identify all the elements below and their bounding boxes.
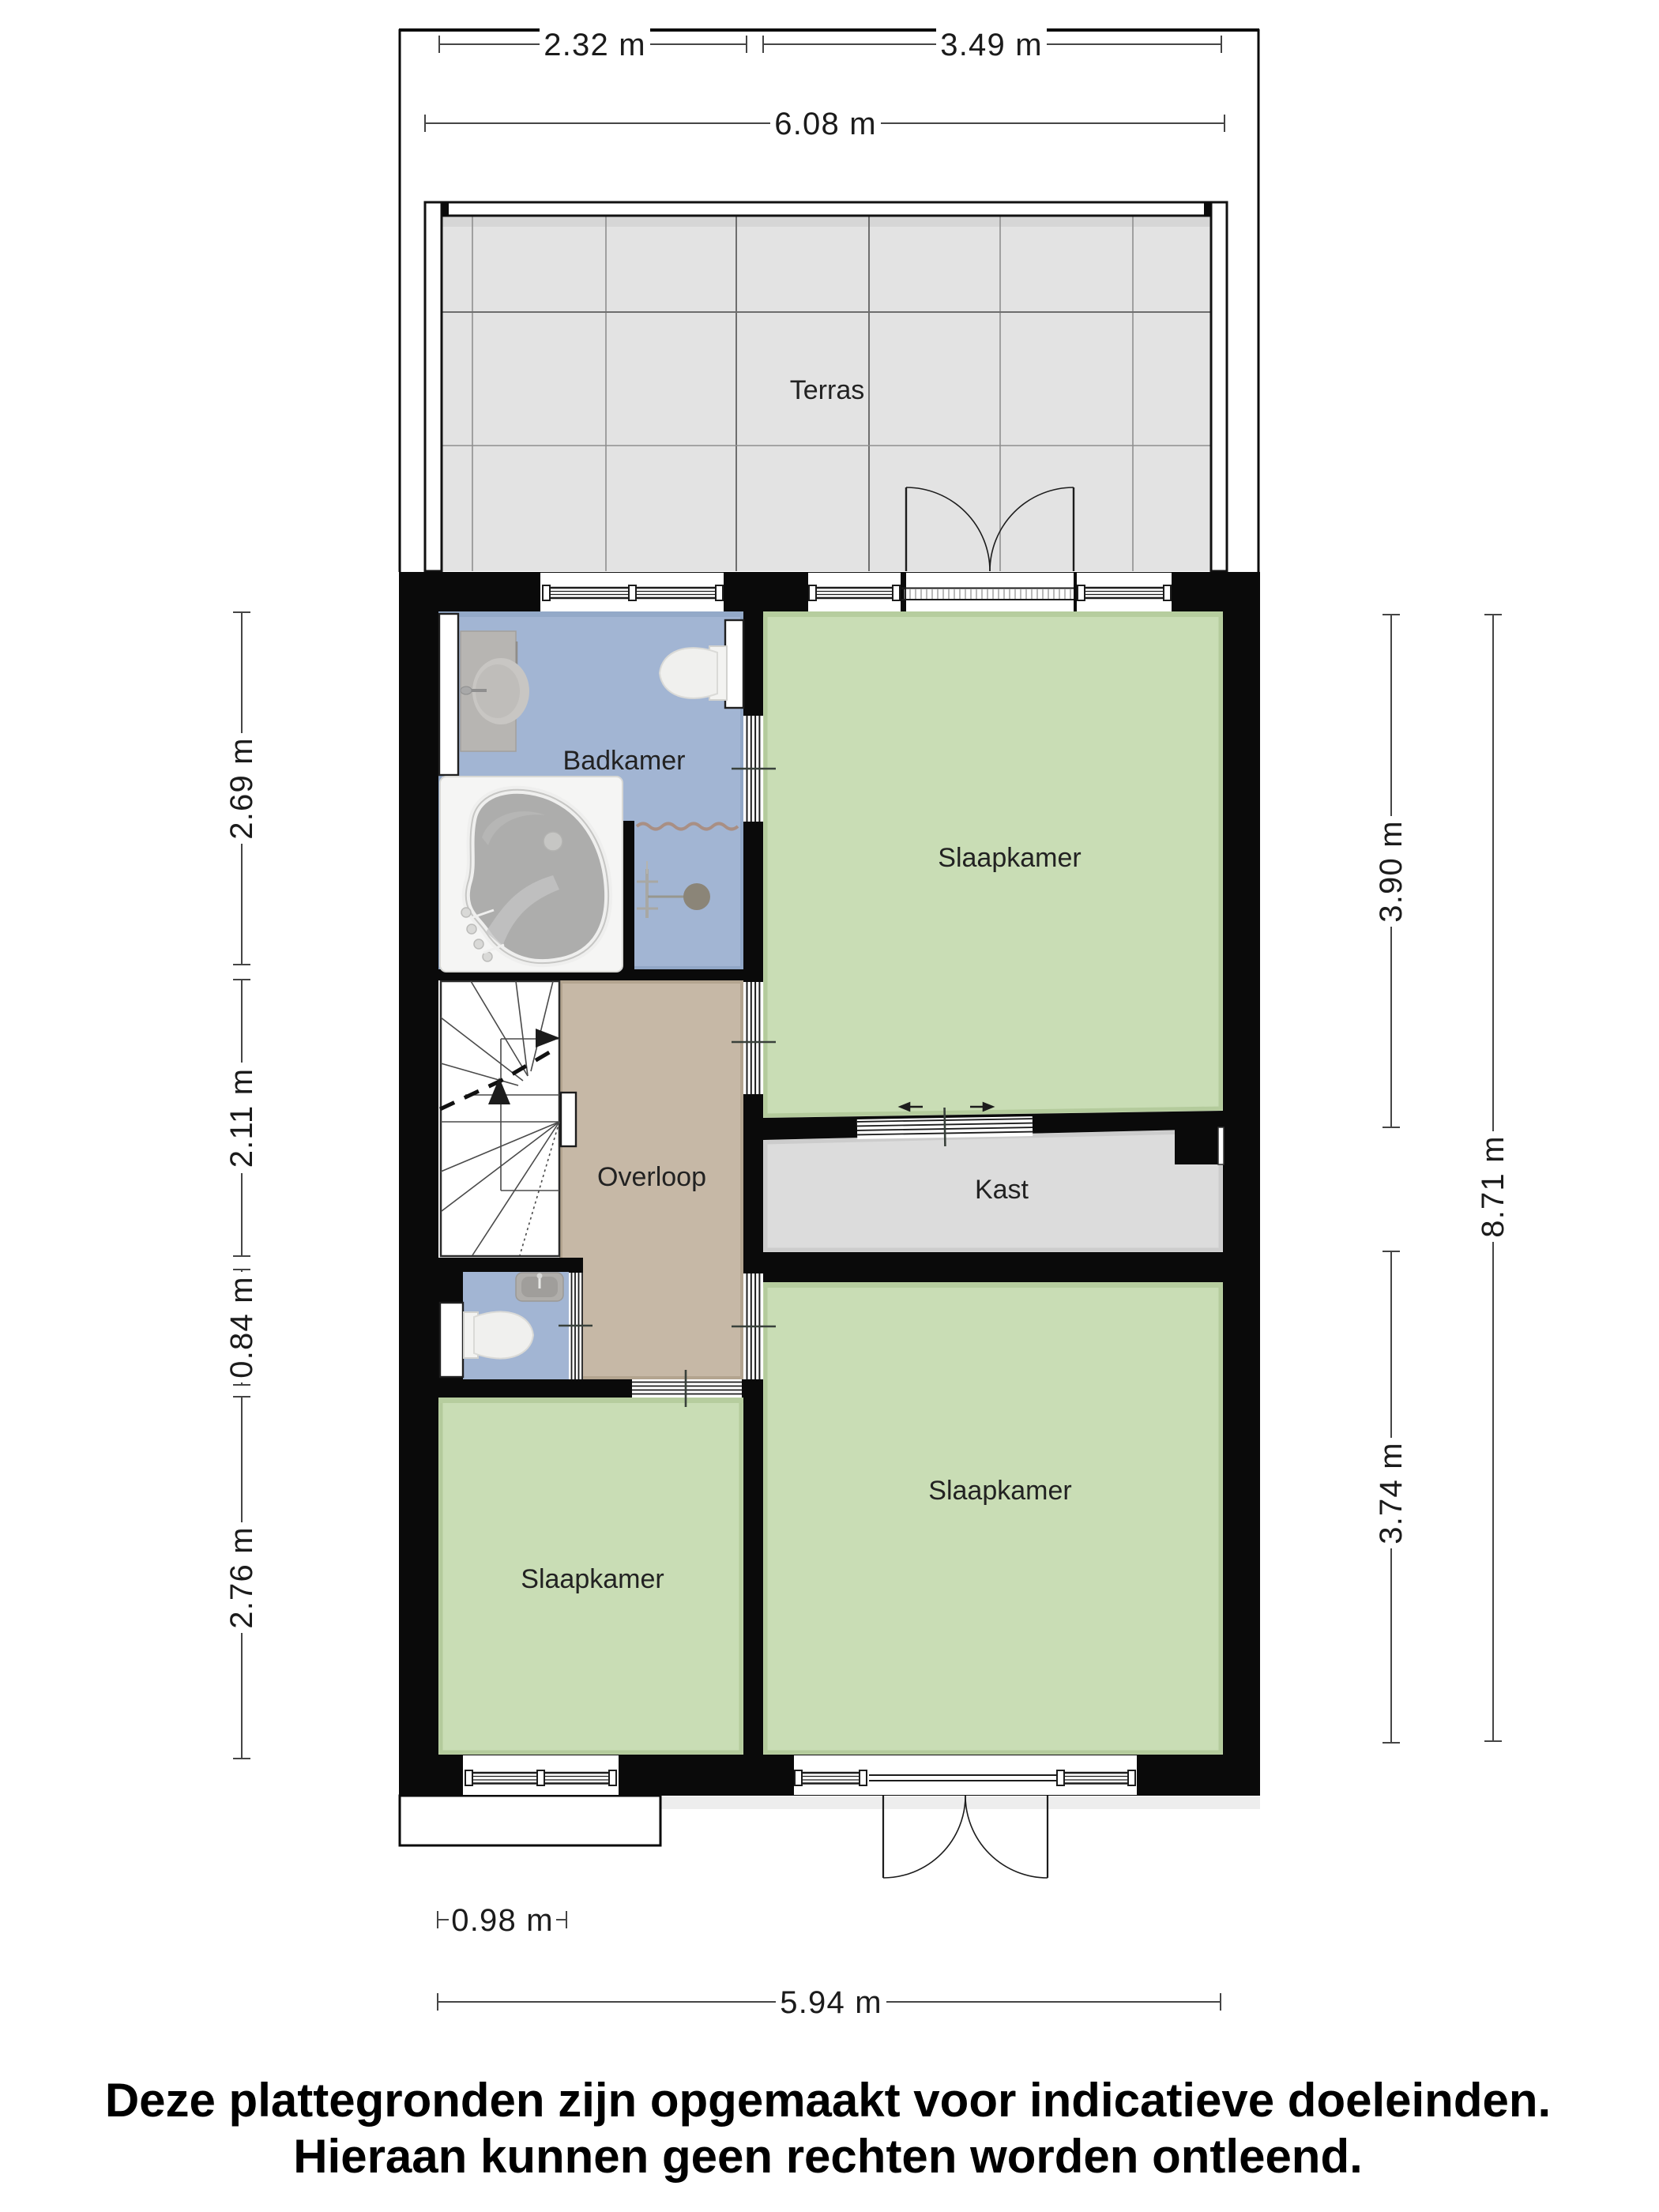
svg-text:2.11 m: 2.11 m <box>224 1068 259 1168</box>
svg-text:0.84 m: 0.84 m <box>224 1276 259 1379</box>
svg-text:3.90 m: 3.90 m <box>1374 820 1409 923</box>
svg-text:Hieraan kunnen geen rechten wo: Hieraan kunnen geen rechten worden ontle… <box>293 2130 1363 2183</box>
svg-text:2.76 m: 2.76 m <box>224 1526 259 1629</box>
svg-text:Slaapkamer: Slaapkamer <box>938 843 1081 873</box>
svg-text:Badkamer: Badkamer <box>563 746 686 776</box>
svg-text:5.94 m: 5.94 m <box>780 1985 882 2020</box>
svg-text:2.69 m: 2.69 m <box>224 737 259 840</box>
svg-text:Slaapkamer: Slaapkamer <box>521 1564 664 1594</box>
svg-text:2.32 m: 2.32 m <box>544 28 646 62</box>
svg-text:3.49 m: 3.49 m <box>940 28 1043 62</box>
svg-text:Slaapkamer: Slaapkamer <box>928 1476 1071 1506</box>
svg-text:Overloop: Overloop <box>597 1162 706 1192</box>
svg-text:Terras: Terras <box>790 375 864 405</box>
svg-text:8.71 m: 8.71 m <box>1476 1135 1510 1238</box>
svg-text:3.74 m: 3.74 m <box>1374 1442 1409 1544</box>
svg-text:Deze plattegronden zijn opgema: Deze plattegronden zijn opgemaakt voor i… <box>105 2074 1551 2127</box>
svg-text:6.08 m: 6.08 m <box>774 107 877 141</box>
svg-text:0.98 m: 0.98 m <box>451 1903 554 1938</box>
svg-text:Kast: Kast <box>975 1175 1029 1205</box>
